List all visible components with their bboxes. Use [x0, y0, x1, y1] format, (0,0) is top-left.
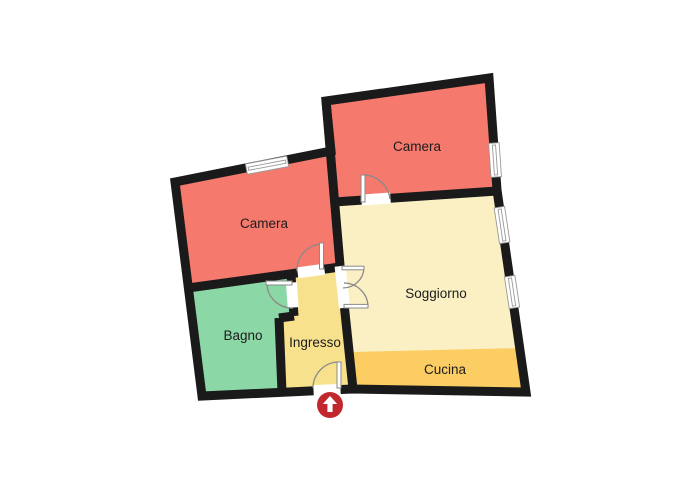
- floorplan-page: Camera Camera Soggiorno Cucina Bagno Ing…: [0, 0, 700, 495]
- door-leaf-camera-top: [361, 175, 365, 202]
- door-gap-bagno: [286, 282, 299, 308]
- wall-bagno-step: [279, 316, 294, 318]
- label-camera-left: Camera: [240, 216, 289, 231]
- label-soggiorno: Soggiorno: [405, 286, 467, 301]
- door-gap-camera-top: [361, 193, 391, 206]
- label-ingresso: Ingresso: [289, 335, 341, 350]
- door-leaf-camera-left: [320, 243, 324, 269]
- label-camera-top: Camera: [393, 139, 442, 154]
- wall-bagno-right-lower: [279, 318, 282, 392]
- entrance-marker: [317, 392, 343, 418]
- floorplan-svg: Camera Camera Soggiorno Cucina Bagno Ing…: [0, 0, 700, 495]
- room-soggiorno: [334, 191, 520, 352]
- door-leaf-bagno: [266, 281, 292, 285]
- window-camera-top-right: [489, 143, 502, 178]
- door-leaf-entrance: [337, 362, 341, 388]
- label-bagno: Bagno: [223, 328, 262, 343]
- door-leaf-double-top: [342, 266, 364, 270]
- door-leaf-double-bottom: [344, 304, 368, 308]
- label-cucina: Cucina: [424, 362, 467, 377]
